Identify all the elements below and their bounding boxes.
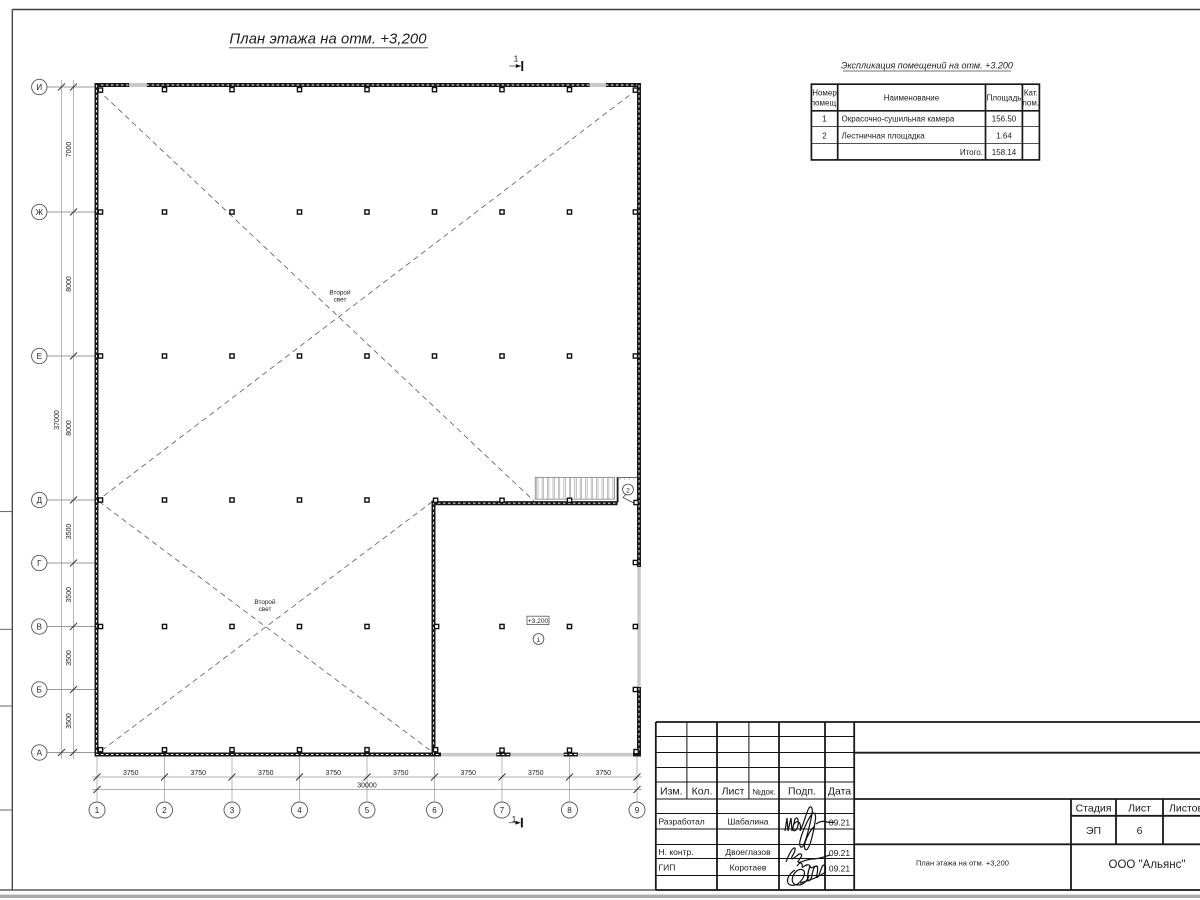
svg-text:3500: 3500 — [66, 713, 73, 729]
svg-text:3: 3 — [230, 806, 235, 815]
svg-text:И: И — [36, 83, 42, 92]
svg-text:пом.: пом. — [1023, 99, 1040, 108]
svg-text:37000: 37000 — [54, 410, 61, 430]
svg-text:Лист: Лист — [1128, 803, 1151, 815]
svg-text:09.21: 09.21 — [829, 864, 851, 874]
svg-text:Подп.: Подп. — [788, 786, 816, 798]
svg-text:свет: свет — [259, 606, 272, 613]
svg-text:Двоеглазов: Двоеглазов — [725, 847, 771, 857]
svg-text:№док.: №док. — [752, 788, 775, 797]
svg-text:Второй: Второй — [329, 289, 351, 297]
svg-text:План этажа на отм. +3,200: План этажа на отм. +3,200 — [916, 859, 1009, 868]
svg-text:2: 2 — [822, 131, 827, 140]
svg-text:3500: 3500 — [66, 650, 73, 666]
svg-text:Наименование: Наименование — [884, 94, 940, 103]
svg-text:3500: 3500 — [66, 587, 73, 603]
svg-text:Лист: Лист — [722, 786, 745, 798]
svg-text:Н. контр.: Н. контр. — [659, 847, 694, 857]
svg-text:158.14: 158.14 — [992, 148, 1017, 157]
svg-text:9: 9 — [635, 806, 640, 815]
svg-text:Экспликация помещений на отм.: Экспликация помещений на отм. +3.200 — [841, 61, 1013, 71]
svg-text:В: В — [37, 623, 42, 632]
svg-text:1.64: 1.64 — [996, 131, 1012, 140]
svg-text:3750: 3750 — [461, 770, 477, 777]
svg-text:1: 1 — [537, 637, 541, 644]
svg-text:Г: Г — [37, 559, 42, 568]
svg-text:Номер: Номер — [812, 89, 837, 98]
svg-text:1: 1 — [822, 115, 827, 124]
svg-text:Шабалина: Шабалина — [727, 817, 768, 827]
svg-text:Б: Б — [37, 686, 42, 695]
svg-text:3750: 3750 — [326, 770, 342, 777]
svg-text:8: 8 — [567, 806, 572, 815]
svg-text:3750: 3750 — [528, 770, 544, 777]
svg-text:Коротаев: Коротаев — [730, 863, 767, 873]
svg-text:30000: 30000 — [357, 782, 377, 789]
svg-text:7000: 7000 — [66, 142, 73, 158]
svg-text:+3.200: +3.200 — [528, 618, 549, 625]
svg-text:А: А — [37, 749, 43, 758]
svg-text:Площадь: Площадь — [987, 94, 1022, 103]
svg-text:Кол.: Кол. — [692, 786, 713, 798]
svg-text:Окрасочно-сушильная камера: Окрасочно-сушильная камера — [842, 115, 955, 124]
svg-text:Стадия: Стадия — [1076, 803, 1112, 815]
svg-text:1: 1 — [95, 806, 100, 815]
svg-text:Кат.: Кат. — [1024, 89, 1038, 98]
svg-text:3750: 3750 — [258, 770, 274, 777]
svg-text:Е: Е — [37, 352, 42, 361]
svg-text:План этажа на отм. +3,200: План этажа на отм. +3,200 — [229, 32, 427, 48]
svg-text:2: 2 — [626, 487, 630, 494]
svg-text:свет: свет — [334, 296, 347, 303]
svg-text:156.50: 156.50 — [992, 115, 1017, 124]
svg-text:3750: 3750 — [596, 770, 612, 777]
svg-text:ООО "Альянс": ООО "Альянс" — [1109, 859, 1186, 871]
svg-text:6: 6 — [432, 806, 437, 815]
svg-text:6: 6 — [1137, 825, 1143, 837]
svg-text:3500: 3500 — [66, 524, 73, 540]
svg-text:8000: 8000 — [66, 420, 73, 436]
svg-text:4: 4 — [297, 806, 302, 815]
svg-text:3750: 3750 — [393, 770, 409, 777]
svg-text:Итого.: Итого. — [960, 148, 983, 157]
svg-text:2: 2 — [162, 806, 167, 815]
svg-text:8000: 8000 — [66, 276, 73, 292]
svg-text:5: 5 — [365, 806, 370, 815]
svg-text:3750: 3750 — [123, 770, 139, 777]
svg-text:Д: Д — [37, 496, 43, 505]
svg-text:Листов: Листов — [1169, 803, 1200, 815]
svg-text:Дата: Дата — [828, 786, 851, 798]
svg-text:Второй: Второй — [254, 598, 276, 606]
svg-text:Изм.: Изм. — [660, 786, 683, 798]
svg-text:3750: 3750 — [191, 770, 207, 777]
svg-text:ГИП: ГИП — [659, 863, 676, 873]
svg-text:помещ.: помещ. — [811, 99, 839, 108]
svg-text:7: 7 — [500, 806, 505, 815]
svg-text:Лестничная площадка: Лестничная площадка — [842, 131, 926, 140]
svg-text:ЭП: ЭП — [1086, 825, 1101, 837]
svg-text:Разработал: Разработал — [659, 817, 705, 827]
svg-text:1: 1 — [514, 54, 519, 64]
svg-text:09.21: 09.21 — [829, 848, 851, 858]
svg-text:Ж: Ж — [36, 208, 44, 217]
